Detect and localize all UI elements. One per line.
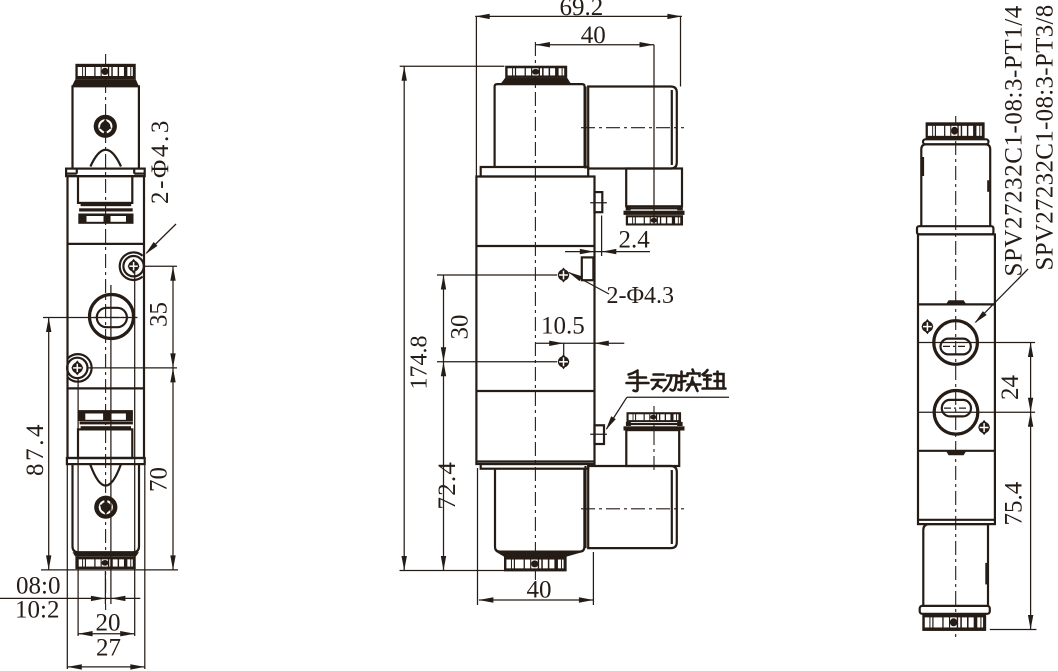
svg-text:2-Φ4.3: 2-Φ4.3 (147, 118, 174, 204)
svg-text:20: 20 (96, 610, 121, 637)
svg-text:72.4: 72.4 (434, 461, 461, 510)
svg-text:08:0: 08:0 (16, 573, 60, 600)
svg-text:30: 30 (447, 315, 474, 340)
svg-text:174.8: 174.8 (407, 336, 433, 390)
svg-text:SPV27232C1-08:3-PT3/8: SPV27232C1-08:3-PT3/8 (1032, 4, 1058, 270)
svg-text:69.2: 69.2 (560, 0, 604, 21)
svg-text:87.4: 87.4 (22, 422, 49, 476)
svg-text:75.4: 75.4 (1001, 481, 1028, 525)
svg-text:SPV27232C1-08:3-PT1/4: SPV27232C1-08:3-PT1/4 (1001, 5, 1028, 276)
svg-text:27: 27 (96, 635, 121, 662)
svg-text:10:2: 10:2 (15, 597, 59, 624)
svg-text:35: 35 (146, 302, 173, 327)
svg-text:10.5: 10.5 (541, 313, 585, 340)
svg-text:24: 24 (997, 375, 1024, 401)
svg-text:2.4: 2.4 (619, 227, 651, 254)
svg-text:70: 70 (146, 467, 173, 492)
svg-text:2-Φ4.3: 2-Φ4.3 (607, 283, 675, 309)
